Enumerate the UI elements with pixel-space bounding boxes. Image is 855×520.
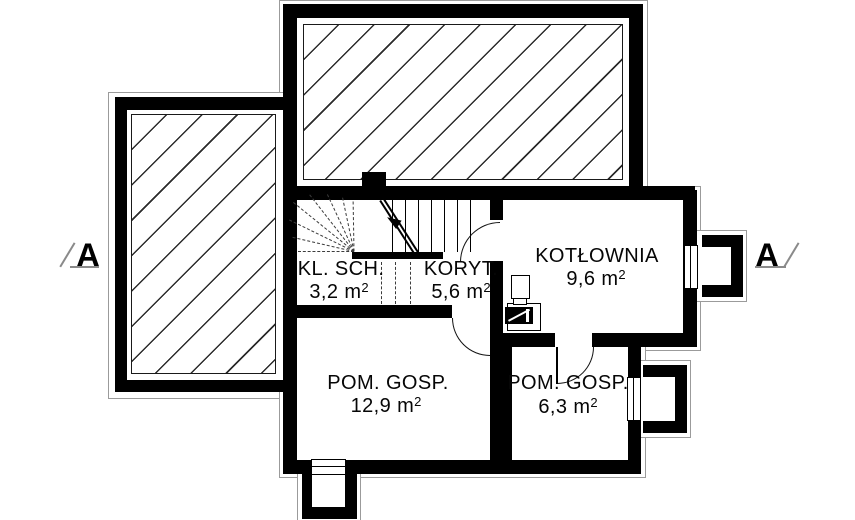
boiler-unit bbox=[511, 275, 530, 299]
room-label-pom-gosp-1: POM. GOSP. bbox=[327, 373, 448, 393]
stair-treads bbox=[392, 200, 471, 252]
wall-middle-horizontal-top bbox=[283, 186, 695, 200]
stair-dashed-line-3 bbox=[410, 262, 411, 304]
section-marker-a-right-baseline bbox=[755, 266, 786, 268]
interior-light-well-right bbox=[700, 247, 731, 285]
door-opening-boiler-storage2 bbox=[555, 333, 592, 347]
floor-plan: KL. SCH. 3,2 m2 KORYT. 5,6 m2 KOTŁOWNIA … bbox=[0, 0, 855, 520]
boiler-flue-slit bbox=[526, 309, 529, 322]
door-opening-corridor-storage1 bbox=[452, 305, 490, 318]
hatch-left-terrace bbox=[131, 114, 276, 374]
window-boiler-room-frame bbox=[690, 246, 691, 288]
room-area-kotlownia: 9,6 m2 bbox=[566, 268, 625, 289]
room-area-pom-gosp-1: 12,9 m2 bbox=[351, 395, 422, 416]
room-label-kotlownia: KOTŁOWNIA bbox=[535, 246, 659, 266]
chimney-block bbox=[362, 172, 386, 200]
room-label-koryt: KORYT. bbox=[424, 259, 498, 279]
section-marker-a-right-tick bbox=[783, 242, 799, 267]
wall-left-exterior bbox=[283, 190, 297, 474]
stair-winder-ray-1 bbox=[298, 251, 354, 252]
boiler-pipe bbox=[513, 298, 527, 305]
section-marker-a-left-baseline bbox=[70, 266, 99, 268]
room-area-kl-sch: 3,2 m2 bbox=[309, 281, 368, 302]
room-area-pom-gosp-2: 6,3 m2 bbox=[538, 396, 597, 417]
room-area-koryt: 5,6 m2 bbox=[431, 281, 490, 302]
interior-light-well-southeast bbox=[641, 377, 675, 421]
hatch-top-terrace bbox=[303, 24, 623, 180]
wall-boiler-bottom bbox=[490, 333, 697, 347]
stair-dashed-line-2 bbox=[395, 262, 396, 304]
room-label-pom-gosp-2: POM. GOSP. bbox=[507, 373, 628, 393]
room-label-kl-sch: KL. SCH. bbox=[298, 259, 385, 279]
window-storage2-frame bbox=[633, 378, 634, 420]
window-storage1-frame bbox=[312, 466, 345, 467]
interior-light-well-bottom bbox=[312, 474, 345, 507]
section-marker-a-left-tick bbox=[59, 242, 75, 267]
